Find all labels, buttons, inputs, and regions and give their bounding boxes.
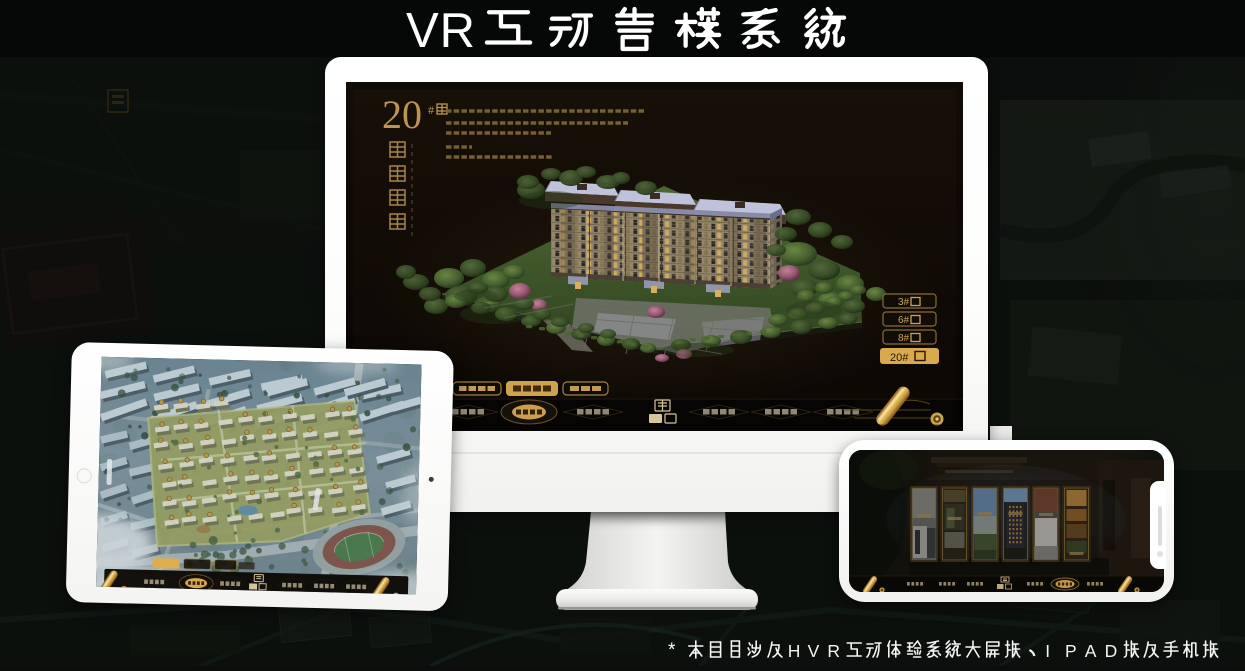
svg-text:VR: VR: [406, 4, 476, 58]
svg-text:8#: 8#: [898, 333, 910, 344]
svg-text:A: A: [1085, 641, 1097, 661]
svg-text:P: P: [1065, 641, 1077, 661]
svg-text:D: D: [1105, 641, 1118, 661]
svg-text:V: V: [808, 641, 820, 661]
svg-text:20: 20: [382, 92, 422, 137]
svg-text:R: R: [827, 641, 840, 661]
svg-text:6#: 6#: [898, 315, 910, 326]
svg-text:I: I: [1045, 641, 1050, 661]
svg-text:20#: 20#: [890, 352, 909, 364]
svg-text:3#: 3#: [898, 297, 910, 308]
svg-text:H: H: [788, 641, 801, 661]
svg-text:*: *: [668, 640, 676, 661]
svg-text:#: #: [428, 103, 434, 117]
